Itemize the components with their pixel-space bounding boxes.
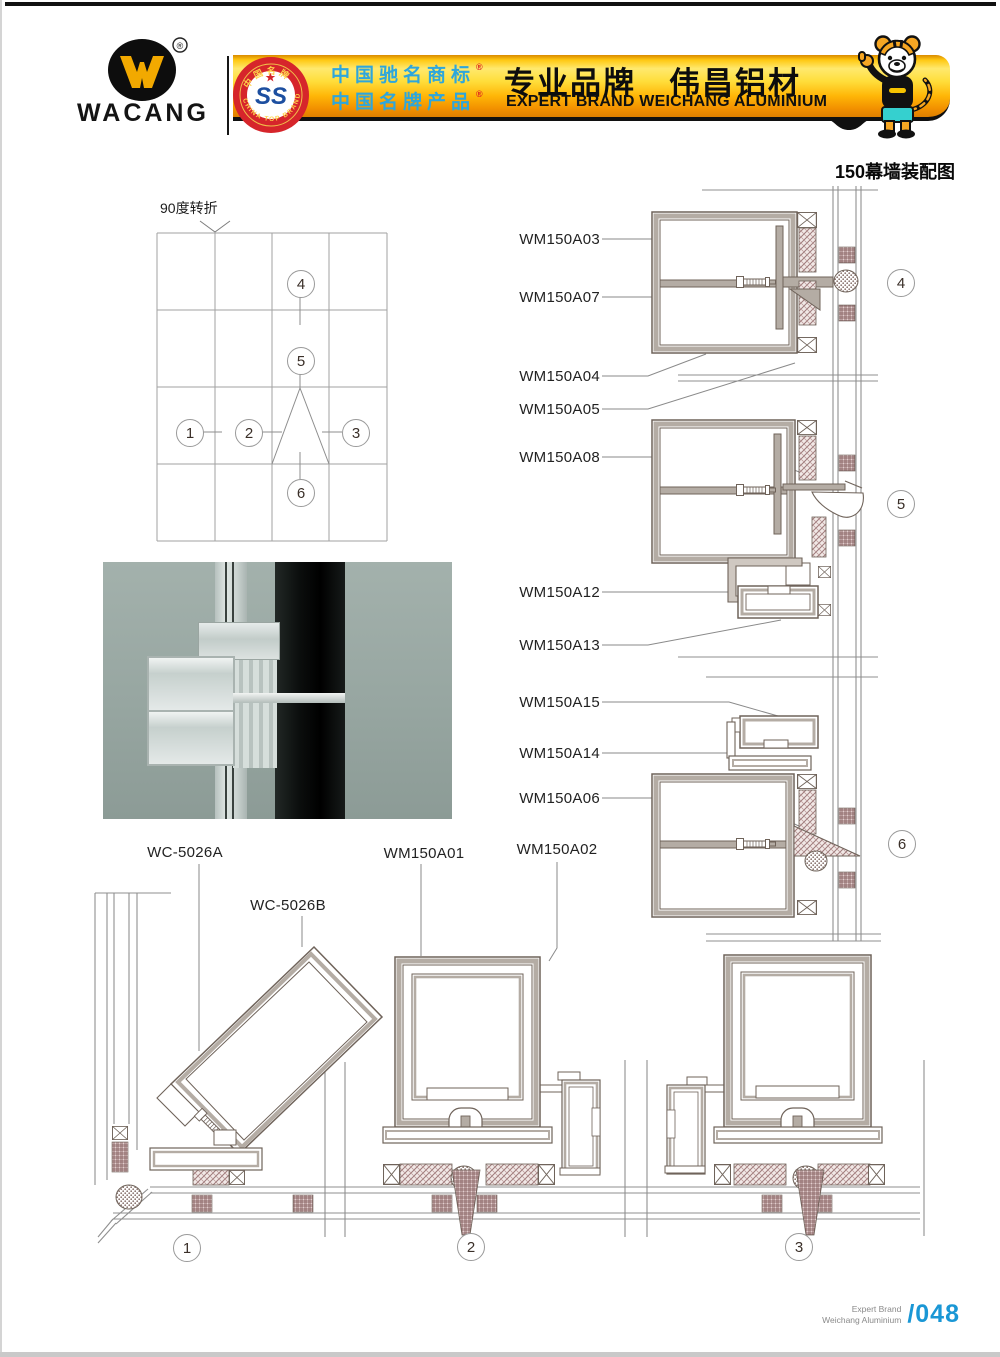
callout-schematic-2: 2	[235, 419, 263, 447]
callout-schematic-5: 5	[287, 347, 315, 375]
part-label-wm150a06: WM150A06	[516, 789, 600, 807]
schematic-corner-label: 90度转折	[160, 198, 270, 218]
photo-profile-box-upper	[147, 656, 235, 712]
part-label-wm150a07: WM150A07	[516, 288, 600, 306]
callout-detail-4: 4	[887, 269, 915, 297]
callout-detail-1: 1	[173, 1234, 201, 1262]
part-label-wm150a05: WM150A05	[516, 400, 600, 418]
part-label-wm150a04: WM150A04	[516, 367, 600, 385]
part-label-wm150a02: WM150A02	[515, 840, 599, 858]
callout-detail-6: 6	[888, 830, 916, 858]
footer-brand: Expert Brand Weichang Aluminium	[822, 1304, 901, 1325]
detail-5-drawing	[652, 420, 863, 618]
callout-schematic-1: 1	[176, 419, 204, 447]
elevation-grid-schematic	[157, 221, 387, 541]
detail-1-drawing	[95, 893, 382, 1209]
callout-schematic-4: 4	[287, 270, 315, 298]
footer-page-number: /048	[907, 1300, 960, 1329]
catalog-page: ® WACANG 中国名牌 CHINA TOP BRAND SS 中国驰名商标 …	[0, 0, 1000, 1357]
photo-profile-flange	[198, 622, 280, 660]
part-label-wm150a15: WM150A15	[516, 693, 600, 711]
part-label-wm150a08: WM150A08	[516, 448, 600, 466]
photo-profile-arm	[233, 693, 345, 703]
callout-schematic-6: 6	[287, 479, 315, 507]
detail-6-drawing	[652, 716, 860, 917]
part-label-wm150a01: WM150A01	[382, 844, 466, 862]
part-label-wm150a03: WM150A03	[516, 230, 600, 248]
detail-4-drawing	[652, 212, 858, 353]
callout-schematic-3: 3	[342, 419, 370, 447]
photo-profile-web	[233, 656, 277, 768]
footer-brand-line1: Expert Brand	[822, 1304, 901, 1315]
part-label-wm150a12: WM150A12	[516, 583, 600, 601]
callout-detail-5: 5	[887, 490, 915, 518]
photo-profile-box-lower	[147, 710, 235, 766]
callout-detail-3: 3	[785, 1233, 813, 1261]
part-label-wc5026b: WC-5026B	[246, 896, 330, 914]
part-label-wm150a14: WM150A14	[516, 744, 600, 762]
profile-photo	[103, 562, 452, 819]
glass-band-setting-blocks	[192, 1195, 832, 1212]
part-label-wc5026a: WC-5026A	[143, 843, 227, 861]
footer-brand-line2: Weichang Aluminium	[822, 1315, 901, 1326]
photo-mullion	[275, 562, 345, 819]
callout-detail-2: 2	[457, 1233, 485, 1261]
footer: Expert Brand Weichang Aluminium /048	[690, 1300, 960, 1329]
part-label-wm150a13: WM150A13	[516, 636, 600, 654]
